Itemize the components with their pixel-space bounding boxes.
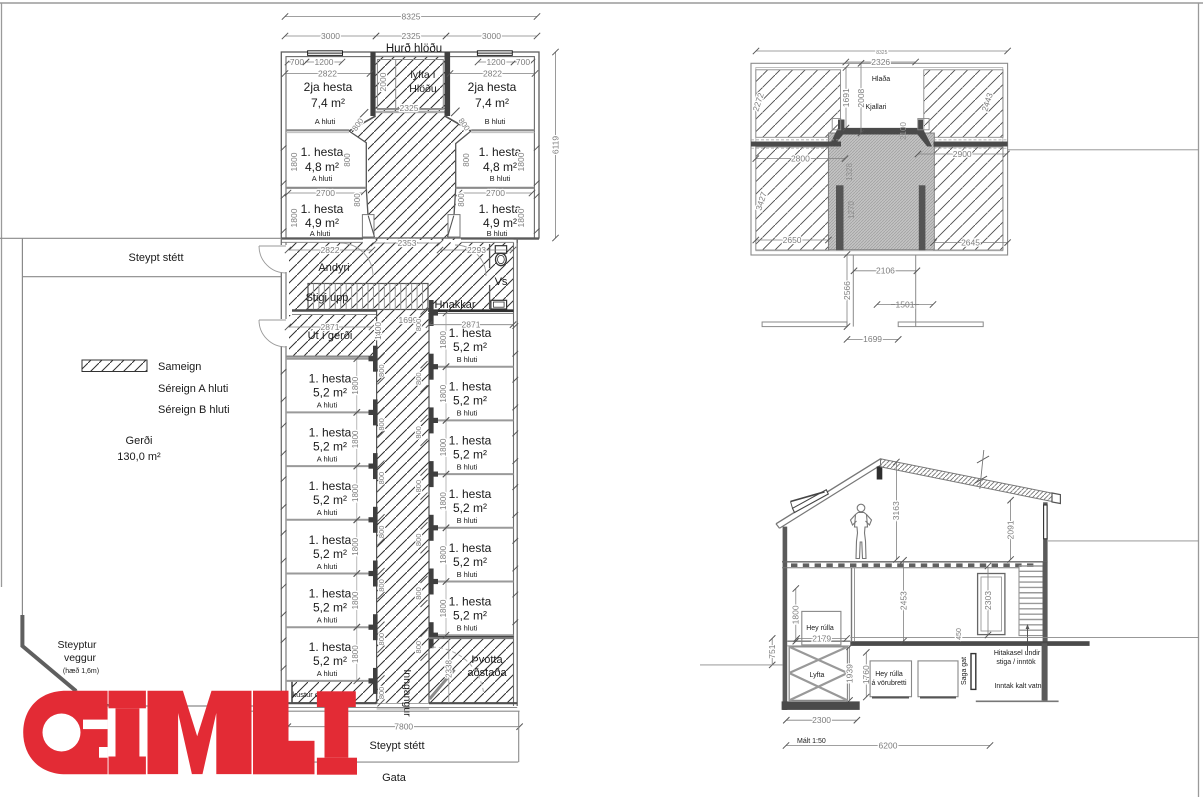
svg-text:2ja hesta: 2ja hesta bbox=[304, 80, 353, 94]
svg-text:800: 800 bbox=[377, 687, 386, 700]
svg-text:2800: 2800 bbox=[791, 153, 810, 163]
svg-text:1800: 1800 bbox=[351, 645, 360, 663]
svg-text:Þvotta: Þvotta bbox=[471, 654, 503, 666]
svg-text:800: 800 bbox=[377, 364, 386, 377]
svg-text:6200: 6200 bbox=[879, 740, 898, 750]
svg-text:2179: 2179 bbox=[812, 633, 831, 643]
svg-text:7,4 m²: 7,4 m² bbox=[475, 96, 509, 110]
svg-text:2100: 2100 bbox=[899, 122, 908, 140]
svg-text:Hnakkar: Hnakkar bbox=[435, 299, 476, 311]
svg-text:1800: 1800 bbox=[439, 492, 448, 510]
svg-text:A hluti: A hluti bbox=[310, 229, 331, 238]
svg-text:5,2 m²: 5,2 m² bbox=[313, 601, 347, 615]
svg-text:1800: 1800 bbox=[791, 605, 801, 624]
svg-text:3000: 3000 bbox=[482, 31, 501, 41]
svg-text:5,2 m²: 5,2 m² bbox=[313, 439, 347, 453]
svg-text:Hlöðu: Hlöðu bbox=[409, 83, 437, 95]
svg-text:5,2 m²: 5,2 m² bbox=[313, 493, 347, 507]
svg-text:450: 450 bbox=[956, 628, 963, 640]
svg-text:1800: 1800 bbox=[439, 438, 448, 456]
svg-text:Andyri: Andyri bbox=[318, 262, 349, 274]
svg-text:A hluti: A hluti bbox=[312, 174, 333, 183]
svg-text:B hluti: B hluti bbox=[490, 174, 511, 183]
svg-text:1. hesta: 1. hesta bbox=[449, 595, 492, 609]
svg-text:1. hesta: 1. hesta bbox=[309, 640, 352, 654]
svg-text:800: 800 bbox=[414, 372, 423, 385]
svg-text:Lyfta: Lyfta bbox=[810, 672, 825, 679]
svg-text:B hluti: B hluti bbox=[457, 409, 478, 418]
svg-text:3000: 3000 bbox=[321, 31, 340, 41]
svg-text:2353: 2353 bbox=[398, 238, 417, 248]
svg-text:B hluti: B hluti bbox=[457, 462, 478, 471]
svg-text:8325: 8325 bbox=[876, 50, 887, 56]
svg-text:1800: 1800 bbox=[351, 376, 360, 394]
svg-text:2650: 2650 bbox=[783, 235, 802, 245]
svg-text:1800: 1800 bbox=[516, 208, 526, 227]
svg-text:1800: 1800 bbox=[351, 484, 360, 502]
svg-text:Gerði: Gerði bbox=[126, 435, 153, 447]
svg-text:2293: 2293 bbox=[467, 245, 486, 255]
svg-text:Séreign A hluti: Séreign A hluti bbox=[158, 383, 228, 395]
svg-text:2453: 2453 bbox=[898, 591, 908, 610]
svg-text:Hey rúlla: Hey rúlla bbox=[806, 625, 834, 632]
svg-text:2000: 2000 bbox=[378, 72, 388, 91]
svg-text:2871: 2871 bbox=[462, 320, 481, 330]
svg-text:3163: 3163 bbox=[891, 501, 901, 520]
svg-text:800: 800 bbox=[377, 579, 386, 592]
svg-text:A hluti: A hluti bbox=[317, 562, 338, 571]
svg-text:7,4 m²: 7,4 m² bbox=[311, 96, 345, 110]
svg-text:1800: 1800 bbox=[351, 430, 360, 448]
svg-text:800: 800 bbox=[414, 480, 423, 493]
svg-text:Steyptur: Steyptur bbox=[57, 639, 97, 651]
svg-text:8325: 8325 bbox=[402, 11, 421, 21]
svg-text:1800: 1800 bbox=[439, 545, 448, 563]
svg-text:4,9 m²: 4,9 m² bbox=[483, 216, 517, 230]
svg-text:veggur: veggur bbox=[64, 652, 97, 664]
svg-text:2325: 2325 bbox=[400, 103, 419, 113]
svg-text:Kjallari: Kjallari bbox=[865, 104, 886, 111]
svg-text:1800: 1800 bbox=[439, 599, 448, 617]
svg-text:B hluti: B hluti bbox=[457, 355, 478, 364]
svg-text:2822: 2822 bbox=[321, 245, 340, 255]
svg-text:1270: 1270 bbox=[847, 201, 856, 219]
svg-text:Inntak kalt vatn: Inntak kalt vatn bbox=[994, 683, 1041, 690]
svg-text:B hluti: B hluti bbox=[487, 229, 508, 238]
svg-text:Hitakasel undir: Hitakasel undir bbox=[994, 650, 1041, 657]
svg-text:Séreign B hluti: Séreign B hluti bbox=[158, 404, 230, 416]
svg-text:2325: 2325 bbox=[402, 31, 421, 41]
svg-text:2300: 2300 bbox=[812, 715, 831, 725]
svg-text:1. hesta: 1. hesta bbox=[309, 479, 352, 493]
svg-text:2645: 2645 bbox=[961, 237, 980, 247]
svg-text:5,2 m²: 5,2 m² bbox=[313, 547, 347, 561]
svg-text:B hluti: B hluti bbox=[457, 570, 478, 579]
svg-text:700: 700 bbox=[290, 57, 304, 67]
svg-text:5,2 m²: 5,2 m² bbox=[453, 340, 487, 354]
svg-text:Sameign: Sameign bbox=[158, 361, 201, 373]
svg-text:130,0 m²: 130,0 m² bbox=[117, 451, 161, 463]
svg-text:4,8 m²: 4,8 m² bbox=[305, 160, 339, 174]
svg-text:5,2 m²: 5,2 m² bbox=[453, 394, 487, 408]
svg-text:800: 800 bbox=[343, 153, 352, 167]
svg-text:1939: 1939 bbox=[844, 664, 854, 683]
svg-text:1200: 1200 bbox=[315, 57, 334, 67]
svg-text:Inngangur: Inngangur bbox=[401, 669, 413, 717]
svg-text:1699: 1699 bbox=[863, 334, 882, 344]
svg-text:1800: 1800 bbox=[351, 591, 360, 609]
svg-text:Hey rúlla: Hey rúlla bbox=[875, 671, 903, 678]
svg-text:A hluti: A hluti bbox=[317, 669, 338, 678]
svg-text:1. hesta: 1. hesta bbox=[301, 202, 344, 216]
svg-text:Stigi upp: Stigi upp bbox=[306, 292, 349, 304]
svg-text:751: 751 bbox=[767, 644, 777, 658]
svg-text:2ja hesta: 2ja hesta bbox=[468, 80, 517, 94]
svg-text:800: 800 bbox=[353, 193, 362, 207]
svg-text:1. hesta: 1. hesta bbox=[301, 145, 344, 159]
svg-text:800: 800 bbox=[457, 193, 466, 207]
svg-text:stiga / inntök: stiga / inntök bbox=[996, 659, 1036, 666]
svg-text:Gata: Gata bbox=[382, 772, 407, 784]
svg-text:Hurð hlöðu: Hurð hlöðu bbox=[386, 43, 442, 55]
svg-text:aðstaða: aðstaða bbox=[467, 667, 507, 679]
svg-text:2700: 2700 bbox=[486, 188, 505, 198]
svg-text:700: 700 bbox=[516, 57, 530, 67]
svg-text:800: 800 bbox=[414, 641, 423, 654]
svg-text:800: 800 bbox=[414, 587, 423, 600]
svg-text:1200: 1200 bbox=[487, 57, 506, 67]
svg-text:800: 800 bbox=[414, 319, 423, 332]
svg-text:B hluti: B hluti bbox=[485, 117, 506, 126]
svg-text:1. hesta: 1. hesta bbox=[309, 533, 352, 547]
svg-text:2822: 2822 bbox=[318, 68, 337, 78]
svg-text:1800: 1800 bbox=[439, 331, 448, 349]
svg-text:1. hesta: 1. hesta bbox=[449, 541, 492, 555]
svg-text:2106: 2106 bbox=[876, 266, 895, 276]
svg-text:2566: 2566 bbox=[842, 281, 852, 300]
svg-text:1800: 1800 bbox=[516, 152, 526, 171]
svg-text:A hluti: A hluti bbox=[315, 117, 336, 126]
svg-text:2900: 2900 bbox=[953, 149, 972, 159]
svg-text:Hlaða: Hlaða bbox=[872, 75, 890, 83]
svg-text:1. hesta: 1. hesta bbox=[449, 433, 492, 447]
svg-text:Mált 1:50: Mált 1:50 bbox=[797, 738, 826, 745]
svg-text:(hæð 1,6m): (hæð 1,6m) bbox=[63, 667, 99, 675]
svg-text:1400: 1400 bbox=[374, 322, 383, 340]
svg-text:A hluti: A hluti bbox=[317, 401, 338, 410]
svg-text:800: 800 bbox=[377, 526, 386, 539]
svg-text:5,2 m²: 5,2 m² bbox=[313, 386, 347, 400]
svg-text:2700: 2700 bbox=[316, 188, 335, 198]
svg-text:800: 800 bbox=[414, 426, 423, 439]
svg-text:5,2 m²: 5,2 m² bbox=[453, 447, 487, 461]
svg-text:2091: 2091 bbox=[1005, 520, 1015, 539]
svg-text:5,2 m²: 5,2 m² bbox=[453, 609, 487, 623]
svg-text:A hluti: A hluti bbox=[317, 616, 338, 625]
svg-text:Vs: Vs bbox=[495, 276, 508, 288]
svg-text:5,2 m²: 5,2 m² bbox=[453, 555, 487, 569]
svg-text:6119: 6119 bbox=[550, 136, 560, 155]
svg-text:1. hesta: 1. hesta bbox=[449, 380, 492, 394]
svg-text:1800: 1800 bbox=[439, 384, 448, 402]
svg-text:Steypt stétt: Steypt stétt bbox=[128, 252, 183, 264]
svg-text:1691: 1691 bbox=[841, 88, 851, 107]
svg-text:4,8 m²: 4,8 m² bbox=[483, 160, 517, 174]
svg-text:800: 800 bbox=[377, 472, 386, 485]
svg-text:1328: 1328 bbox=[845, 163, 854, 181]
svg-text:7800: 7800 bbox=[394, 722, 413, 732]
svg-text:1. hesta: 1. hesta bbox=[309, 372, 352, 386]
svg-text:lyfta í: lyfta í bbox=[410, 69, 435, 81]
svg-text:2822: 2822 bbox=[483, 68, 502, 78]
svg-text:800: 800 bbox=[377, 418, 386, 431]
svg-text:Steypt stétt: Steypt stétt bbox=[369, 740, 424, 752]
svg-text:2871: 2871 bbox=[321, 322, 340, 332]
svg-text:800: 800 bbox=[414, 534, 423, 547]
svg-text:1800: 1800 bbox=[289, 152, 299, 171]
svg-text:800: 800 bbox=[377, 633, 386, 646]
svg-text:1800: 1800 bbox=[289, 208, 299, 227]
svg-text:5,2 m²: 5,2 m² bbox=[313, 654, 347, 668]
svg-text:2338: 2338 bbox=[445, 660, 454, 678]
svg-text:1. hesta: 1. hesta bbox=[309, 425, 352, 439]
svg-text:4,9 m²: 4,9 m² bbox=[305, 216, 339, 230]
svg-text:1. hesta: 1. hesta bbox=[449, 487, 492, 501]
svg-text:Saga gat: Saga gat bbox=[961, 657, 968, 685]
svg-text:2326: 2326 bbox=[871, 57, 890, 67]
svg-text:1. hesta: 1. hesta bbox=[309, 587, 352, 601]
svg-text:B hluti: B hluti bbox=[457, 624, 478, 633]
svg-text:A hluti: A hluti bbox=[317, 454, 338, 463]
svg-text:800: 800 bbox=[462, 153, 471, 167]
svg-text:B hluti: B hluti bbox=[457, 516, 478, 525]
svg-text:1800: 1800 bbox=[351, 537, 360, 555]
svg-text:á vörubretti: á vörubretti bbox=[871, 680, 906, 687]
svg-text:2008: 2008 bbox=[856, 88, 866, 107]
svg-text:2303: 2303 bbox=[983, 591, 993, 610]
svg-text:5,2 m²: 5,2 m² bbox=[453, 501, 487, 515]
svg-text:A hluti: A hluti bbox=[317, 508, 338, 517]
